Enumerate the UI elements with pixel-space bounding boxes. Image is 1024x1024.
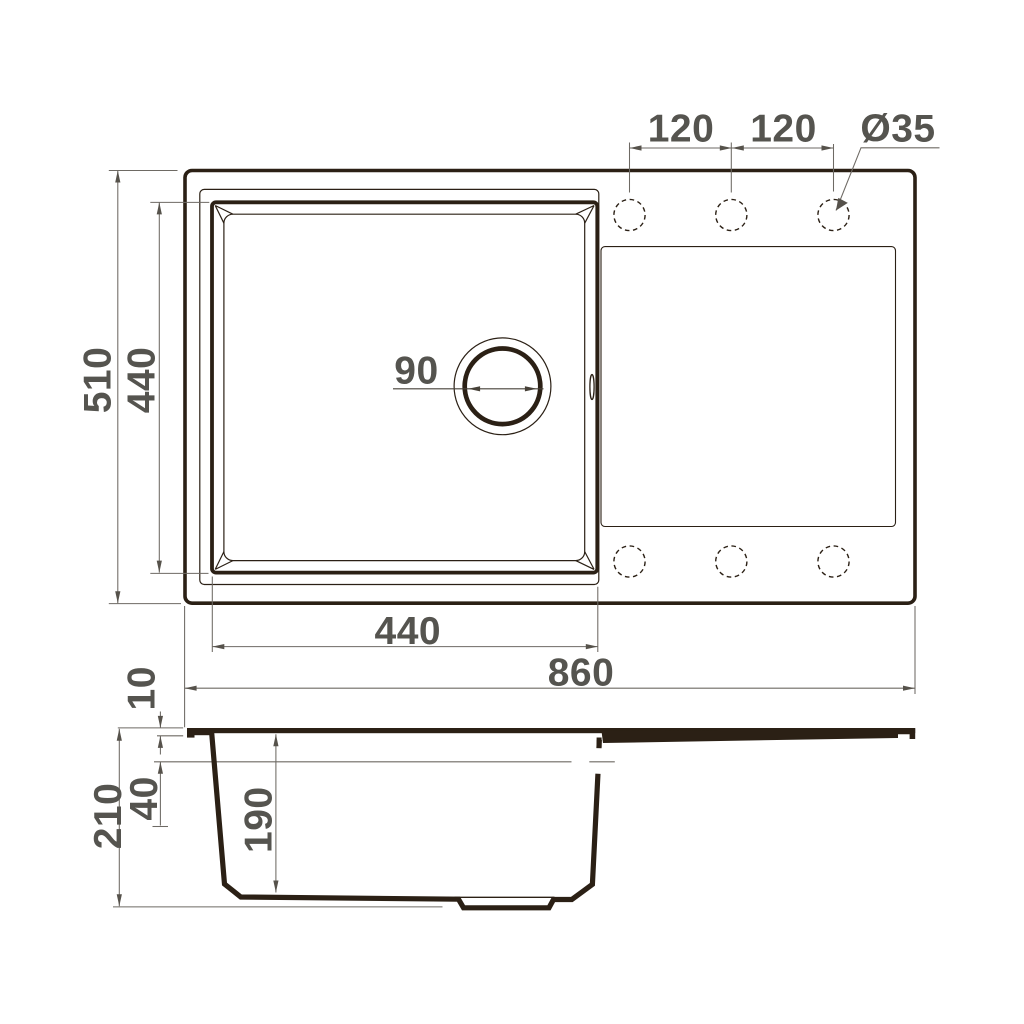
svg-text:120: 120 (750, 108, 817, 151)
svg-text:190: 190 (237, 786, 280, 853)
svg-text:860: 860 (548, 652, 615, 695)
svg-text:440: 440 (120, 347, 163, 414)
svg-text:90: 90 (394, 350, 438, 393)
svg-text:210: 210 (87, 783, 130, 850)
svg-text:510: 510 (76, 347, 119, 414)
svg-text:10: 10 (120, 666, 163, 710)
svg-text:Ø35: Ø35 (860, 108, 935, 151)
svg-text:440: 440 (375, 610, 442, 653)
svg-text:120: 120 (648, 108, 715, 151)
